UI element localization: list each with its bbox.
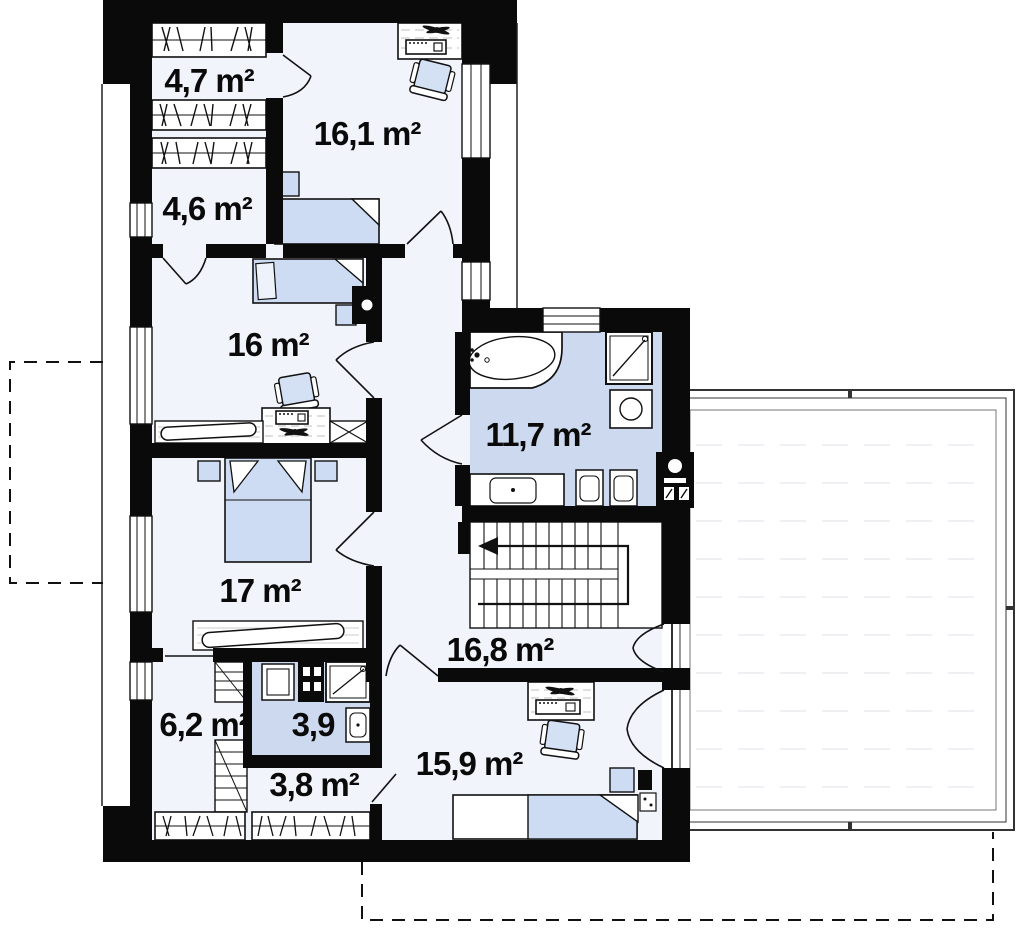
wall [130, 0, 152, 862]
shower-icon [326, 662, 370, 702]
room-label-hallway: 16,8 m² [447, 631, 555, 668]
staircase [470, 522, 662, 628]
wall [103, 0, 517, 23]
laptop-icon [276, 411, 308, 424]
wall [370, 804, 382, 840]
window-icon [130, 203, 152, 237]
room-label-wc: 3,9 [292, 706, 336, 743]
wardrobe-shelf-icon [252, 812, 370, 840]
bed-icon [253, 259, 363, 303]
washing-machine-icon [610, 390, 652, 428]
window-icon [462, 64, 490, 158]
wall [458, 522, 470, 554]
dashed-outline-left [10, 362, 103, 583]
chair-icon [539, 719, 585, 760]
floor-plan-drawing: 4,7 m² 16,1 m² 4,6 m² 16 m² 11,7 m² 17 m… [0, 0, 1024, 928]
room-label-wardrobe: 6,2 m² [159, 706, 249, 743]
wall [462, 506, 690, 522]
room-label-closet-top: 4,7 m² [164, 62, 254, 99]
wall [152, 443, 382, 458]
duct-icon [298, 662, 324, 702]
chair-icon [273, 372, 320, 414]
window-icon [462, 262, 490, 300]
wall [266, 23, 283, 53]
wall [152, 648, 163, 662]
wall [266, 98, 283, 244]
wall [455, 465, 470, 506]
bathtub-icon [467, 332, 562, 388]
desk-icon [193, 621, 363, 650]
wardrobe-shelf-icon [152, 138, 266, 168]
floor-plan: 4,7 m² 16,1 m² 4,6 m² 16 m² 11,7 m² 17 m… [0, 0, 1024, 928]
wall [152, 244, 163, 258]
keyboard-icon [536, 700, 580, 714]
room-label-closet-upper: 4,6 m² [162, 190, 252, 227]
window-icon [130, 516, 152, 612]
wall [455, 332, 470, 415]
room-label-bedroom-top: 16,1 m² [314, 115, 422, 152]
toilet-icon [576, 470, 603, 506]
wall [366, 250, 382, 342]
wardrobe-shelf-icon [152, 23, 266, 57]
terrace [672, 390, 1014, 830]
wardrobe-shelf-icon [152, 100, 266, 130]
terrace-railing-outer [672, 390, 1014, 830]
vanity-sink-icon [470, 474, 564, 506]
wall [103, 840, 690, 862]
tv-knob-icon [362, 300, 373, 311]
wall [283, 244, 405, 258]
desk-icon [262, 408, 330, 444]
wall [366, 566, 382, 682]
window-icon [543, 308, 600, 332]
crossed-wardrobe-icon [330, 421, 368, 443]
wall [206, 244, 266, 258]
nightstand-icon [315, 461, 337, 481]
toilet-icon [346, 708, 370, 742]
room-label-bedroom-mid: 16 m² [227, 326, 309, 363]
wall [453, 244, 462, 258]
room-label-closet-bottom: 3,8 m² [269, 766, 359, 803]
room-label-bathroom: 11,7 m² [486, 416, 592, 453]
wardrobe-shelf-icon [155, 812, 245, 840]
shower-icon [606, 332, 652, 384]
wall [370, 682, 382, 755]
keyboard-icon [406, 40, 446, 54]
bed-icon [453, 795, 638, 839]
window-icon [130, 662, 152, 700]
ladder-wardrobe-icon [215, 740, 247, 812]
bed-icon [275, 199, 379, 244]
nightstand-icon [198, 461, 220, 481]
low-shelf-icon [155, 421, 263, 443]
ladder-wardrobe-icon [215, 662, 247, 702]
room-label-bedroom-low: 17 m² [219, 572, 301, 609]
wall [662, 768, 690, 862]
double-bed-icon [225, 458, 311, 562]
nightstand-icon [610, 768, 634, 792]
window-icon [130, 327, 152, 424]
desk-icon [398, 23, 462, 59]
sink-icon [262, 664, 294, 700]
wall [438, 668, 662, 682]
desk-icon [528, 682, 594, 720]
room-label-bedroom-bottom: 15,9 m² [416, 745, 524, 782]
wall [213, 648, 382, 662]
bidet-icon [610, 470, 637, 506]
wall [662, 668, 690, 690]
